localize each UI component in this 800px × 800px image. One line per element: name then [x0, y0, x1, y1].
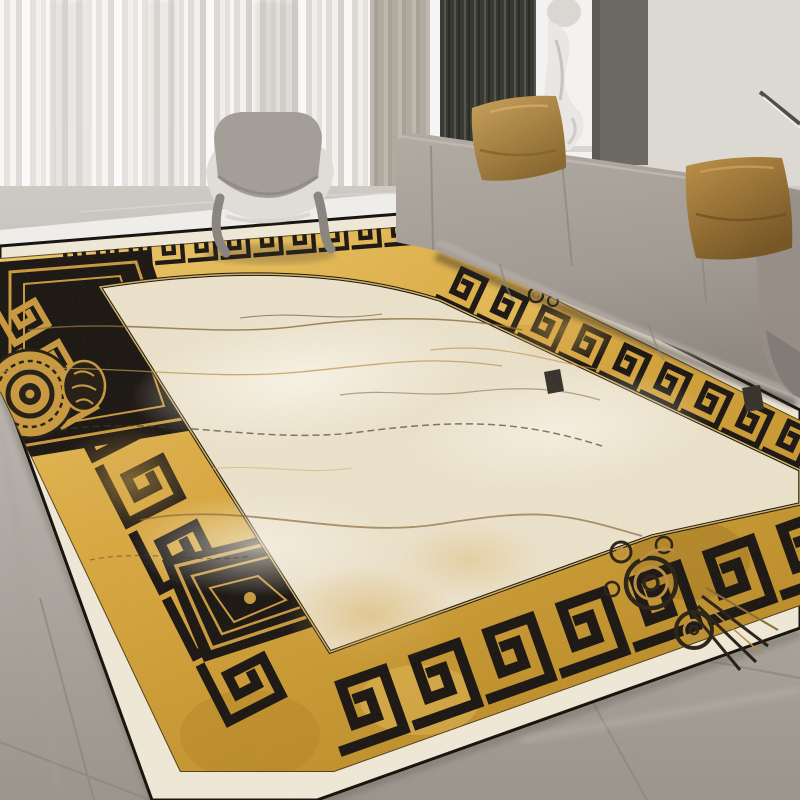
living-room-photo [0, 0, 800, 800]
pillow-right [686, 157, 793, 260]
pillow-left [472, 96, 566, 181]
wall-panel [592, 0, 648, 165]
wall-panel-edge [592, 0, 600, 165]
scene-canvas [0, 0, 800, 800]
